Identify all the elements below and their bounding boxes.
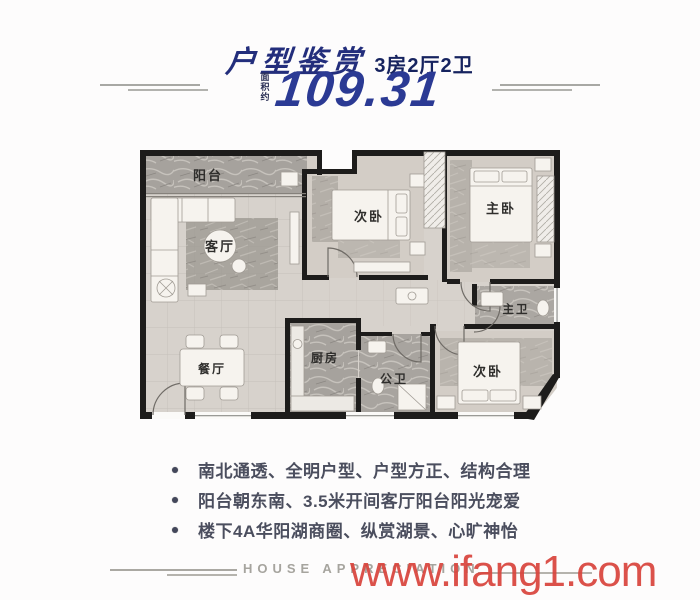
list-item: 阳台朝东南、3.5米开间客厅阳台阳光宠爱 — [172, 487, 528, 512]
room-label-master: 主卧 — [486, 201, 516, 216]
bullet-icon — [172, 497, 178, 503]
deco-line-left-top — [100, 84, 200, 86]
top-notch-mask — [322, 146, 352, 170]
bullet-icon — [172, 467, 178, 473]
feature-text-2: 阳台朝东南、3.5米开间客厅阳台阳光宠爱 — [198, 487, 521, 512]
tv-cabinet — [290, 212, 299, 264]
deco-line-right-top — [500, 84, 600, 86]
list-item: 楼下4A华阳湖商圈、纵赏湖景、心旷神怡 — [172, 517, 528, 542]
master-bath-sink — [481, 292, 503, 306]
room-label-living: 客厅 — [205, 239, 235, 254]
room-label-bedroom-mid: 次卧 — [354, 209, 384, 224]
room-label-balcony: 阳台 — [193, 168, 223, 183]
deco-line-left-bottom — [128, 89, 208, 91]
duct-shaft — [424, 152, 445, 228]
footer-line-left-top — [110, 569, 237, 571]
area-prefix-label: 面积约 — [260, 72, 270, 106]
area-value: 109.31 — [273, 66, 444, 112]
floorplan: 阳台 客厅 餐厅 次卧 主卧 主卫 次卧 厨房 公卫 — [140, 138, 570, 430]
balcony-cabinet — [281, 172, 298, 186]
guest-bath-sink — [368, 341, 386, 353]
room-label-dining: 餐厅 — [198, 361, 226, 376]
footer-line-left-bottom — [167, 574, 237, 576]
room-label-master-bath: 主卫 — [503, 302, 530, 316]
room-label-bedroom-corner: 次卧 — [473, 364, 503, 379]
listing-flyer: 户型鉴赏 3房2厅2卫 面积约 109.31 — [0, 0, 700, 600]
site-watermark: www.ifang1.com — [350, 547, 656, 597]
wardrobe — [537, 176, 554, 242]
room-label-kitchen: 厨房 — [311, 350, 339, 365]
area-row: 面积约 109.31 — [0, 66, 700, 112]
bullet-icon — [172, 527, 178, 533]
feature-text-3: 楼下4A华阳湖商圈、纵赏湖景、心旷神怡 — [198, 517, 518, 542]
feature-list: 南北通透、全明户型、户型方正、结构合理 阳台朝东南、3.5米开间客厅阳台阳光宠爱… — [0, 457, 700, 542]
list-item: 南北通透、全明户型、户型方正、结构合理 — [172, 457, 528, 482]
feature-text-1: 南北通透、全明户型、户型方正、结构合理 — [198, 457, 531, 482]
master-bath-toilet — [537, 300, 549, 316]
room-label-guest-bath: 公卫 — [380, 372, 408, 386]
deco-line-right-bottom — [492, 89, 572, 91]
